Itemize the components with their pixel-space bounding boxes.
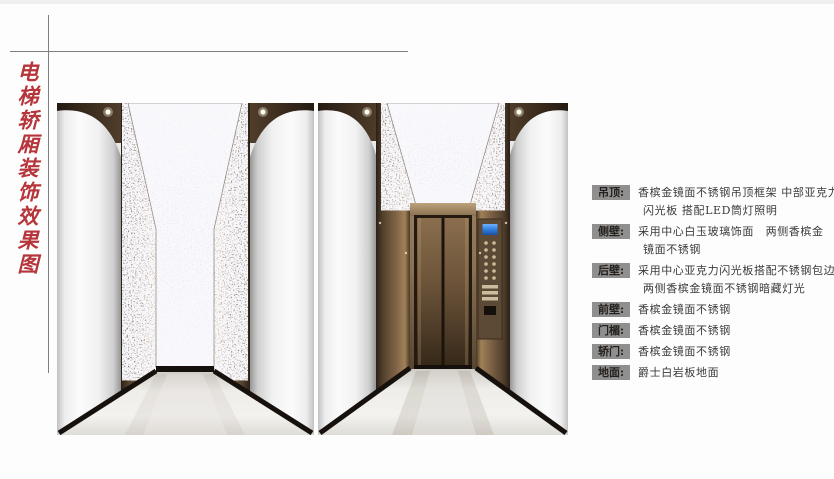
crop-mark-horizontal-line — [10, 51, 408, 52]
spec-row-door-header: 门楣: 香槟金镜面不锈钢 — [592, 322, 828, 340]
spec-line: 香槟金镜面不锈钢 — [638, 343, 731, 361]
spec-label-badge: 门楣: — [592, 323, 630, 338]
spec-label-badge: 地面: — [592, 365, 630, 380]
fig1-side-wall-right — [250, 110, 314, 435]
crop-mark-vertical-line — [48, 15, 49, 373]
top-edge-strip — [0, 0, 834, 4]
spec-line: 两侧香槟金镜面不锈钢暗藏灯光 — [638, 280, 834, 298]
spec-text: 香槟金镜面不锈钢吊顶框架 中部亚克力 闪光板 搭配LED筒灯照明 — [638, 184, 834, 220]
spec-text: 采用中心白玉玻璃饰面 两侧香槟金 镜面不锈钢 — [638, 223, 824, 259]
fig2-cop-speaker — [484, 306, 496, 315]
fig2-door-sill — [414, 365, 472, 369]
spec-row-front-wall: 前壁: 香槟金镜面不锈钢 — [592, 301, 828, 319]
spec-line: 采用中心白玉玻璃饰面 两侧香槟金 — [638, 223, 824, 241]
spec-row-rear-wall: 后壁: 采用中心亚克力闪光板搭配不锈钢包边 两侧香槟金镜面不锈钢暗藏灯光 — [592, 262, 828, 298]
spec-row-side-wall: 侧壁: 采用中心白玉玻璃饰面 两侧香槟金 镜面不锈钢 — [592, 223, 828, 259]
spec-row-ceiling: 吊顶: 香槟金镜面不锈钢吊顶框架 中部亚克力 闪光板 搭配LED筒灯照明 — [592, 184, 828, 220]
fig2-door-transom — [410, 203, 476, 216]
fig1-side-wall-left — [57, 110, 121, 435]
fig2-cop-display-screen — [483, 224, 498, 235]
fig2-side-wall-left — [318, 110, 376, 435]
fig2-door-center-seam — [442, 218, 445, 366]
spec-text: 爵士白岩板地面 — [638, 364, 719, 382]
spec-line: 香槟金镜面不锈钢 — [638, 301, 731, 319]
spec-line: 闪光板 搭配LED筒灯照明 — [638, 202, 834, 220]
spec-label-badge: 前壁: — [592, 302, 630, 317]
rendering-left-elevator-interior — [57, 103, 314, 435]
presentation-slide: 电梯轿厢装饰效果图 — [0, 0, 834, 479]
spec-text: 采用中心亚克力闪光板搭配不锈钢包边 两侧香槟金镜面不锈钢暗藏灯光 — [638, 262, 834, 298]
spec-line: 香槟金镜面不锈钢 — [638, 322, 731, 340]
rendering-right-elevator-door — [318, 103, 568, 435]
fig2-side-wall-right — [510, 110, 568, 435]
spec-text: 香槟金镜面不锈钢 — [638, 343, 731, 361]
spec-row-floor: 地面: 爵士白岩板地面 — [592, 364, 828, 382]
spec-label-badge: 吊顶: — [592, 185, 630, 200]
spec-label-badge: 后壁: — [592, 263, 630, 278]
material-spec-list: 吊顶: 香槟金镜面不锈钢吊顶框架 中部亚克力 闪光板 搭配LED筒灯照明 侧壁:… — [592, 184, 828, 385]
spec-line: 镜面不锈钢 — [638, 241, 824, 259]
spec-line: 爵士白岩板地面 — [638, 364, 719, 382]
spec-label-badge: 轿门: — [592, 344, 630, 359]
fig2-cop-bar-buttons — [482, 285, 498, 301]
page-title: 电梯轿厢装饰效果图 — [12, 61, 42, 277]
spec-text: 香槟金镜面不锈钢 — [638, 322, 731, 340]
spec-label-badge: 侧壁: — [592, 224, 630, 239]
spec-line: 香槟金镜面不锈钢吊顶框架 中部亚克力 — [638, 184, 834, 202]
spec-text: 香槟金镜面不锈钢 — [638, 301, 731, 319]
fig2-control-panel — [478, 219, 502, 339]
spec-line: 采用中心亚克力闪光板搭配不锈钢包边 — [638, 262, 834, 280]
spec-row-cab-door: 轿门: 香槟金镜面不锈钢 — [592, 343, 828, 361]
